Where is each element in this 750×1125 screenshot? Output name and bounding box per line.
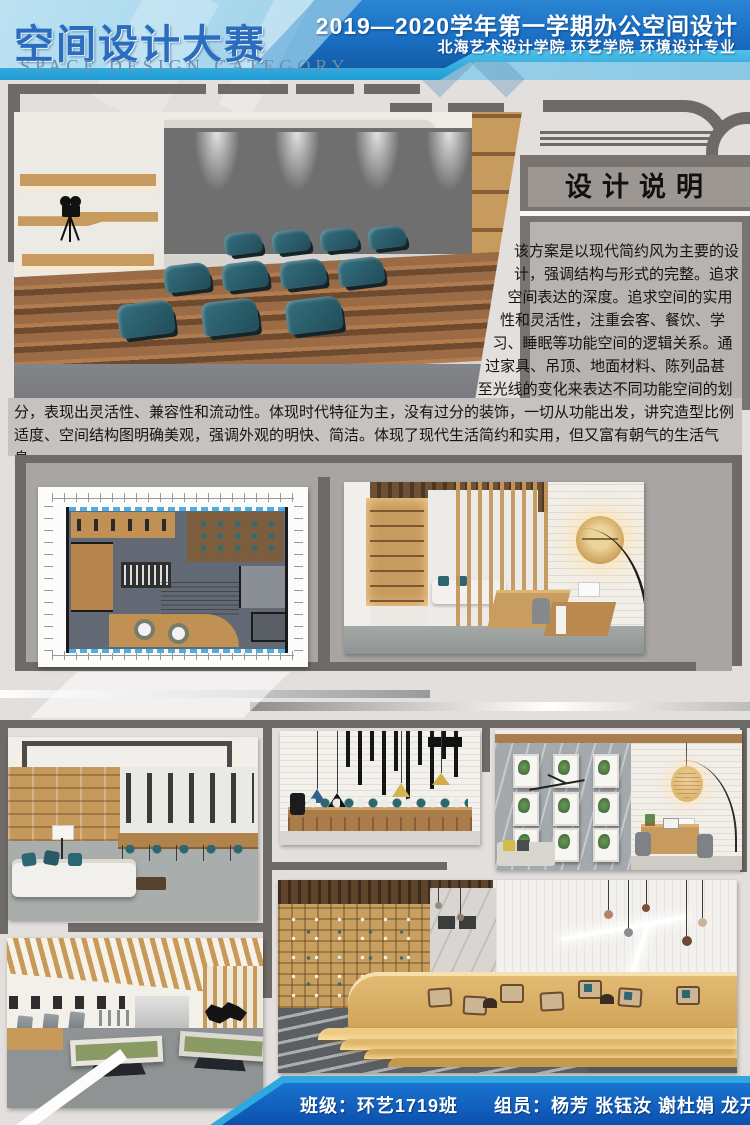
office-chair — [697, 834, 713, 858]
stage-step — [388, 1058, 737, 1067]
poster-title-en: SPACE DESIGN CATEGORY — [20, 56, 349, 77]
metallic-stripe — [250, 702, 750, 711]
teal-pillow — [21, 852, 37, 867]
ceiling-slat — [382, 731, 386, 795]
plan-dim-line — [52, 498, 294, 499]
header-band: 空间设计大赛 SPACE DESIGN CATEGORY 2019—2020学年… — [0, 0, 750, 80]
counter-front-texture — [288, 817, 472, 831]
pendant-cord — [438, 880, 439, 902]
plant-art — [558, 760, 570, 776]
plant-art — [598, 798, 610, 814]
pendant-lamp-yellow — [392, 783, 410, 797]
side-table — [600, 994, 614, 1004]
ceiling-slat — [418, 731, 422, 765]
theater-spotlight — [274, 132, 320, 192]
plan-body — [66, 507, 288, 653]
floor-plan-drawing — [38, 487, 308, 667]
gym-rendering — [7, 938, 263, 1108]
pendant-cord — [401, 731, 402, 783]
pendant-bulb — [604, 910, 613, 919]
top-rule-dash — [296, 84, 354, 94]
teal-pillow — [584, 984, 592, 992]
teal-pillow — [438, 576, 449, 586]
theater-spotlight — [194, 132, 240, 192]
stage-lounge-rendering — [278, 880, 737, 1073]
section2-right-bar — [732, 460, 742, 666]
gym-window-row — [9, 996, 125, 1009]
plan-dim-ticks — [294, 503, 303, 651]
pendant-bulb — [642, 904, 650, 912]
rocking-chair — [676, 986, 700, 1005]
botanical-print-frame — [553, 828, 579, 862]
rocking-chair — [500, 984, 524, 1003]
botanical-print-frame — [553, 792, 579, 826]
top-rule-dash — [448, 103, 504, 112]
circuit-motif-bar — [543, 100, 661, 112]
small-sofa — [497, 842, 555, 866]
plan-chair-grid — [195, 518, 279, 558]
plan-window-strip — [69, 507, 285, 511]
top-rule-dash — [364, 84, 420, 94]
plan-window-strip — [69, 649, 285, 653]
ceiling-slat — [370, 731, 374, 761]
plan-round-table — [171, 626, 186, 641]
cafe-chairs-row — [292, 797, 468, 811]
section3-left-bar — [0, 720, 8, 934]
ceiling-slat — [394, 731, 398, 771]
office-shelf-lines — [370, 502, 424, 602]
design-note-separator — [520, 211, 750, 216]
pendant-lamp-yellow — [432, 773, 450, 785]
lounge-rendering — [8, 737, 258, 920]
pendant-cord — [337, 731, 338, 793]
botanical-print-frame — [593, 792, 619, 826]
office-lounge-rendering — [344, 482, 644, 654]
laptop — [663, 818, 679, 829]
office-shelving — [366, 498, 428, 606]
office-floor — [631, 856, 742, 870]
circuit-motif-line — [540, 131, 716, 134]
exercise-machines — [99, 1010, 129, 1026]
rocking-chair — [427, 987, 452, 1008]
circuit-motif-line — [540, 143, 716, 146]
section3-short-bar — [482, 724, 490, 772]
teal-pillow — [682, 990, 690, 998]
gray-pillow — [517, 840, 529, 851]
office-desk-panel — [556, 606, 566, 634]
section2-top-bar — [15, 455, 742, 463]
pendant-cord — [686, 880, 687, 936]
theater-spotlight — [426, 132, 472, 192]
section2-left-bar — [15, 455, 26, 671]
plan-equipment-marks — [77, 519, 171, 531]
plant-art — [518, 798, 530, 814]
office-chair — [532, 598, 550, 624]
theater-wood-shelf — [20, 174, 156, 186]
bar-stools — [122, 845, 256, 861]
plan-office-zone — [187, 512, 283, 562]
cafe-floor — [280, 831, 480, 845]
pool-table — [178, 1031, 263, 1075]
pool-table-top — [179, 1031, 263, 1062]
plant-art — [598, 760, 610, 776]
desk-plant — [645, 814, 655, 826]
botanical-print-frame — [593, 828, 619, 862]
header-school-line: 北海艺术设计学院 环艺学院 环境设计专业 — [438, 36, 736, 57]
gym-wood-floor-strip — [7, 1028, 63, 1050]
rocking-chair — [578, 980, 602, 999]
design-note-title-band: 设计说明 — [528, 167, 750, 207]
plant-art — [558, 798, 570, 814]
lounge-right-wall — [120, 767, 258, 835]
pendant-cord — [702, 880, 703, 918]
coffee-table — [136, 877, 166, 890]
diagonal-wedge — [30, 672, 290, 718]
footer-members-label: 组员：杨芳 张钰汝 谢杜娟 龙开鸾 王雨欣 — [494, 1092, 750, 1118]
pendant-bulb — [457, 914, 464, 921]
photo-frame — [438, 916, 455, 929]
plant-art — [518, 760, 530, 776]
rocking-chair — [617, 987, 642, 1008]
pendant-cord — [628, 880, 629, 928]
side-table — [483, 998, 497, 1008]
plan-lounge-zone — [109, 614, 239, 647]
section3-center-bar — [263, 720, 272, 998]
plan-dim-ticks — [44, 503, 53, 651]
plan-small-room — [251, 612, 287, 642]
circuit-motif-line — [540, 137, 716, 140]
top-rule-dash — [218, 84, 288, 94]
plan-dim-line — [52, 655, 294, 656]
botanical-print-frame — [593, 754, 619, 788]
poster-root: 空间设计大赛 SPACE DESIGN CATEGORY 2019—2020学年… — [0, 0, 750, 1125]
office-desk — [544, 602, 616, 636]
plan-gym-zone — [71, 512, 175, 538]
plan-side-rooms — [71, 542, 113, 612]
air-vent — [428, 737, 462, 747]
pendant-cord — [608, 880, 609, 910]
cafe-bar-rendering — [280, 731, 480, 845]
design-note-paragraph: 该方案是以现代简约风为主要的设计，强调结构与形式的完整。追求空间表达的深度。追求… — [14, 240, 740, 462]
theater-spotlight — [354, 132, 400, 192]
botanical-office-rendering — [495, 730, 742, 870]
floor-lamp-shade — [52, 825, 74, 840]
office-chair — [635, 832, 651, 856]
arc-lamp-shade — [578, 582, 600, 597]
teal-pillow — [624, 992, 633, 1001]
pendant-bulb — [624, 928, 633, 937]
rocking-chair — [540, 991, 565, 1011]
design-note-title: 设计说明 — [528, 167, 750, 207]
pendant-bulb — [698, 918, 707, 927]
movie-camera-icon — [58, 196, 98, 246]
ceiling-slat — [358, 731, 362, 785]
pendant-cord — [317, 731, 318, 789]
teal-pillow — [68, 853, 82, 866]
section3-top-bar — [0, 720, 750, 728]
footer-credits: 班级：环艺1719班 组员：杨芳 张钰汝 谢杜娟 龙开鸾 王雨欣 — [300, 1092, 750, 1118]
teal-pillow — [43, 850, 60, 866]
plan-storage-room — [239, 566, 285, 608]
top-rule-bar — [8, 84, 206, 94]
botanical-print-frame — [513, 792, 539, 826]
pendant-cord — [646, 880, 647, 904]
ceiling-slat — [346, 731, 350, 767]
plan-round-table — [137, 622, 152, 637]
plant-art — [598, 834, 610, 850]
plant-art — [558, 834, 570, 850]
pendant-cord — [441, 731, 442, 773]
pendant-bulb — [682, 936, 692, 946]
text-wrap-spacer — [14, 240, 514, 394]
lounge-sofa — [12, 859, 136, 897]
pendant-cord — [460, 880, 461, 914]
section2-mid-bar — [318, 477, 330, 665]
plan-annotation-text — [161, 582, 239, 616]
black-armchair — [290, 793, 305, 815]
cafe-bottom-bar — [272, 862, 447, 870]
botanical-print-frame — [513, 754, 539, 788]
footer-class-label: 班级：环艺1719班 — [300, 1092, 458, 1118]
top-rule-dash — [390, 103, 432, 112]
window-slats — [126, 773, 254, 823]
wood-top-band — [495, 734, 742, 743]
lounge-bottom-bar — [68, 923, 272, 932]
yellow-pillow — [503, 840, 515, 851]
pendant-bulb — [435, 902, 442, 909]
